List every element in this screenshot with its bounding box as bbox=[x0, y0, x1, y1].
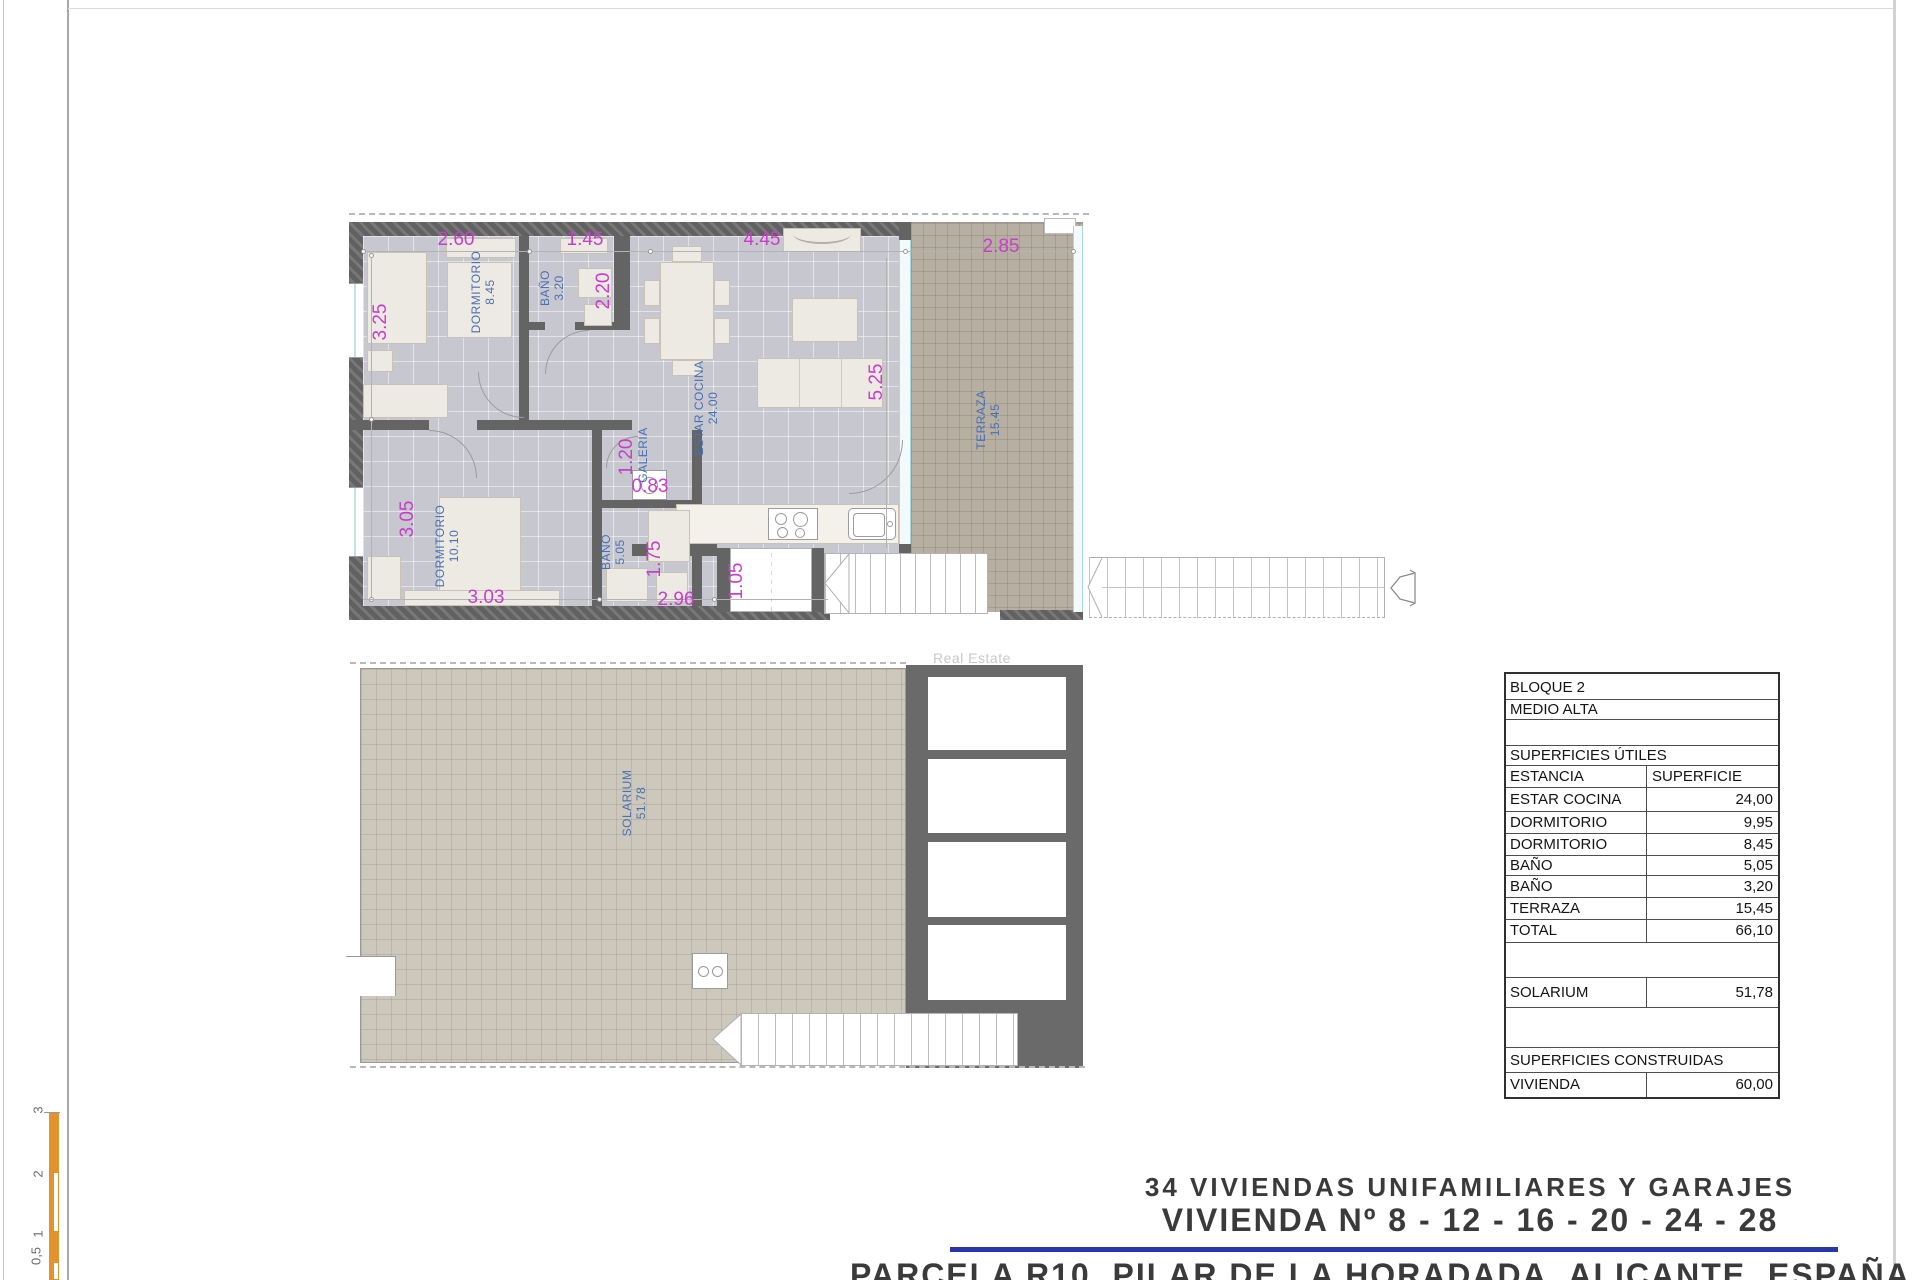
scale-label: 1 bbox=[31, 1230, 46, 1237]
scale-label: 2 bbox=[31, 1170, 46, 1177]
wall bbox=[519, 322, 545, 330]
table-cell: 3,20 bbox=[1744, 878, 1773, 895]
sink-bowl bbox=[853, 513, 885, 537]
table-row: BAÑO 5,05 bbox=[1506, 856, 1778, 876]
window-glass bbox=[354, 284, 356, 357]
table-row bbox=[1506, 720, 1778, 746]
table-cell: VIVIENDA bbox=[1510, 1076, 1580, 1093]
title-accent-rule bbox=[950, 1247, 1838, 1252]
wall bbox=[812, 548, 824, 612]
column-header: ESTANCIA bbox=[1510, 768, 1584, 785]
table-cell: 66,10 bbox=[1735, 922, 1773, 939]
table-cell: DORMITORIO bbox=[1510, 836, 1607, 853]
room-name: DORMITORIO bbox=[433, 505, 447, 588]
dimension-label: 2.85 bbox=[983, 236, 1020, 258]
boundary-dashed-line bbox=[350, 1066, 1085, 1068]
dining-table bbox=[660, 262, 714, 360]
room-name: TERRAZA bbox=[974, 390, 988, 450]
chair bbox=[644, 318, 660, 344]
table-row: MEDIO ALTA bbox=[1506, 700, 1778, 720]
table-row: TOTAL 66,10 bbox=[1506, 920, 1778, 943]
room-label-dormitorio-2: DORMITORIO 10.10 bbox=[433, 505, 461, 588]
room-name: DORMITORIO bbox=[469, 251, 483, 334]
table-row: SUPERFICIES ÚTILES bbox=[1506, 746, 1778, 766]
areas-table: BLOQUE 2 MEDIO ALTA SUPERFICIES ÚTILES E… bbox=[1504, 672, 1780, 1099]
scale-label: 0,5 bbox=[29, 1247, 44, 1265]
sofa-seam bbox=[841, 359, 842, 407]
dimension-line bbox=[886, 258, 887, 548]
room-label-terraza: TERRAZA 15.45 bbox=[974, 390, 1002, 450]
sheet-frame-line-top bbox=[68, 8, 1894, 9]
dimension-tick bbox=[527, 249, 532, 254]
nightstand bbox=[367, 556, 401, 600]
table-cell: ESTAR COCINA bbox=[1510, 791, 1621, 808]
dimension-label: 2.20 bbox=[593, 273, 615, 310]
title-line-3: PARCELA R10, PILAR DE LA HORADADA, ALICA… bbox=[850, 1257, 1890, 1280]
dimension-label: 1.20 bbox=[616, 439, 638, 476]
sheet-edge-line bbox=[3, 0, 4, 1280]
room-area: 10.10 bbox=[447, 505, 461, 588]
room-name: GALERIA bbox=[636, 427, 650, 483]
glass-wall bbox=[899, 240, 911, 548]
burner bbox=[777, 527, 788, 538]
table-row: BLOQUE 2 bbox=[1506, 674, 1778, 700]
skylight-dome bbox=[698, 966, 709, 977]
solarium-notch bbox=[346, 956, 396, 996]
sheet-frame-line-left bbox=[67, 0, 69, 1280]
table-cell: BAÑO bbox=[1510, 878, 1553, 895]
dimension-label: 3.25 bbox=[370, 304, 392, 341]
table-cell: 5,05 bbox=[1744, 857, 1773, 874]
stair-break-icon bbox=[824, 553, 850, 614]
sofa-seam bbox=[799, 359, 800, 407]
table-row: DORMITORIO 8,45 bbox=[1506, 834, 1778, 856]
room-label-solarium: SOLARIUM 51.78 bbox=[620, 770, 648, 837]
table-cell: BLOQUE 2 bbox=[1510, 679, 1585, 696]
wall bbox=[477, 420, 632, 430]
column-header: SUPERFICIE bbox=[1652, 768, 1742, 785]
wall bbox=[899, 222, 911, 240]
wall bbox=[349, 420, 429, 430]
dimension-tick bbox=[369, 253, 374, 258]
terrace-corner-block bbox=[1044, 218, 1076, 234]
dimension-tick bbox=[369, 417, 374, 422]
dimension-line bbox=[363, 599, 828, 600]
table-row: TERRAZA 15,45 bbox=[1506, 898, 1778, 920]
dimension-label: 1.05 bbox=[726, 563, 748, 600]
scale-bar-segment bbox=[49, 1172, 59, 1232]
scale-bar-segment bbox=[49, 1232, 59, 1262]
scale-bar-segment bbox=[49, 1262, 59, 1280]
sink-drain bbox=[887, 521, 893, 527]
skylight-dome bbox=[712, 966, 723, 977]
room-area: 3.20 bbox=[552, 270, 566, 306]
room-label-dormitorio-1: DORMITORIO 8.45 bbox=[469, 251, 497, 334]
wall bbox=[592, 430, 602, 606]
walkway-start-icon bbox=[1087, 557, 1103, 618]
table-row bbox=[1506, 943, 1778, 978]
room-area: 24.00 bbox=[706, 360, 720, 455]
stair-break-icon bbox=[712, 1013, 742, 1066]
boundary-dashed-line bbox=[350, 662, 906, 664]
sofa bbox=[757, 358, 883, 408]
sink-basin bbox=[606, 568, 648, 602]
room-name: ESTAR COCINA bbox=[692, 360, 706, 455]
scale-bar-segment bbox=[49, 1113, 59, 1172]
room-label-estar-cocina: ESTAR COCINA 24.00 bbox=[692, 360, 720, 455]
table-row: BAÑO 3,20 bbox=[1506, 876, 1778, 898]
cooktop bbox=[768, 508, 818, 540]
drawing-sheet: 2.60 1.45 4.45 2.85 3.25 3.05 2.20 5.25 … bbox=[0, 0, 1920, 1280]
core-opening bbox=[928, 759, 1066, 833]
solarium-floor bbox=[360, 668, 906, 1063]
table-section-header: SUPERFICIES ÚTILES bbox=[1510, 747, 1667, 764]
room-name: BAÑO bbox=[599, 534, 613, 570]
entrance-arrow-icon bbox=[1388, 569, 1418, 607]
solarium-stairs bbox=[740, 1013, 1018, 1066]
room-name: SOLARIUM bbox=[620, 770, 634, 837]
table-cell: BAÑO bbox=[1510, 857, 1553, 874]
table-row bbox=[1506, 1008, 1778, 1048]
table-section-header: SUPERFICIES CONSTRUIDAS bbox=[1510, 1052, 1723, 1069]
room-area: 8.45 bbox=[483, 251, 497, 334]
room-area: 5.05 bbox=[613, 534, 627, 570]
boundary-dashed-line bbox=[349, 213, 1089, 215]
window-glass bbox=[354, 488, 356, 556]
dimension-label: 2.96 bbox=[658, 589, 695, 611]
room-label-bano-1: BAÑO 3.20 bbox=[538, 270, 566, 306]
table-cell: 9,95 bbox=[1744, 814, 1773, 831]
dimension-label: 5.25 bbox=[866, 364, 888, 401]
room-label-bano-2: BAÑO 5.05 bbox=[599, 534, 627, 570]
room-name: BAÑO bbox=[538, 270, 552, 306]
dimension-label: 3.03 bbox=[468, 587, 505, 609]
core-opening bbox=[928, 925, 1066, 1000]
scale-label: 3 bbox=[31, 1106, 46, 1113]
kitchen-sink bbox=[848, 508, 896, 540]
table-cell: TOTAL bbox=[1510, 922, 1557, 939]
dimension-tick bbox=[361, 249, 366, 254]
coffee-table bbox=[792, 298, 858, 342]
chair bbox=[672, 246, 702, 262]
dimension-tick bbox=[712, 597, 717, 602]
table-cell: SOLARIUM bbox=[1510, 984, 1588, 1001]
table-cell: TERRAZA bbox=[1510, 900, 1580, 917]
chair bbox=[714, 280, 730, 306]
table-row: ESTAR COCINA 24,00 bbox=[1506, 788, 1778, 812]
dimension-label: 1.75 bbox=[644, 541, 666, 578]
skylight-box bbox=[692, 953, 728, 989]
walkway-stairs bbox=[1089, 557, 1385, 618]
core-opening bbox=[928, 677, 1066, 750]
chair bbox=[714, 318, 730, 344]
room-area: 51.78 bbox=[634, 770, 648, 837]
title-line-2: VIVIENDA Nº 8 - 12 - 16 - 20 - 24 - 28 bbox=[1050, 1202, 1890, 1239]
wall bbox=[1000, 610, 1083, 620]
dimension-tick bbox=[1071, 249, 1076, 254]
window bbox=[349, 487, 363, 557]
title-line-1: 34 VIVIENDAS UNIFAMILIARES Y GARAJES bbox=[1050, 1172, 1890, 1203]
table-cell: 60,00 bbox=[1735, 1076, 1773, 1093]
glass-railing bbox=[1073, 226, 1083, 612]
core-opening bbox=[928, 842, 1066, 917]
chair bbox=[644, 280, 660, 306]
dimension-tick bbox=[903, 249, 908, 254]
dimension-tick bbox=[597, 597, 602, 602]
table-cell: MEDIO ALTA bbox=[1510, 701, 1598, 718]
table-row: SOLARIUM 51,78 bbox=[1506, 978, 1778, 1008]
sheet-frame-line-right bbox=[1893, 0, 1896, 1280]
room-label-galeria: GALERIA bbox=[636, 427, 650, 483]
table-cell: 15,45 bbox=[1735, 900, 1773, 917]
dimension-label: 3.05 bbox=[397, 501, 419, 538]
table-cell: DORMITORIO bbox=[1510, 814, 1607, 831]
dimension-label: 1.45 bbox=[567, 229, 604, 251]
table-row: DORMITORIO 9,95 bbox=[1506, 812, 1778, 834]
dimension-label: 2.60 bbox=[438, 229, 475, 251]
burner bbox=[795, 528, 805, 538]
table-cell: 8,45 bbox=[1744, 836, 1773, 853]
table-cell: 24,00 bbox=[1735, 791, 1773, 808]
watermark: Real Estate bbox=[933, 650, 1011, 666]
burner bbox=[793, 512, 808, 527]
table-cell: 51,78 bbox=[1735, 984, 1773, 1001]
cabinet bbox=[363, 384, 448, 418]
dimension-tick bbox=[648, 249, 653, 254]
table-row: SUPERFICIES CONSTRUIDAS bbox=[1506, 1048, 1778, 1073]
room-area: 15.45 bbox=[988, 390, 1002, 450]
window bbox=[349, 283, 363, 358]
dimension-label: 4.45 bbox=[744, 229, 781, 251]
table-header-row: ESTANCIA SUPERFICIE bbox=[1506, 766, 1778, 788]
burner bbox=[775, 513, 787, 525]
table-row: VIVIENDA 60,00 bbox=[1506, 1073, 1778, 1097]
